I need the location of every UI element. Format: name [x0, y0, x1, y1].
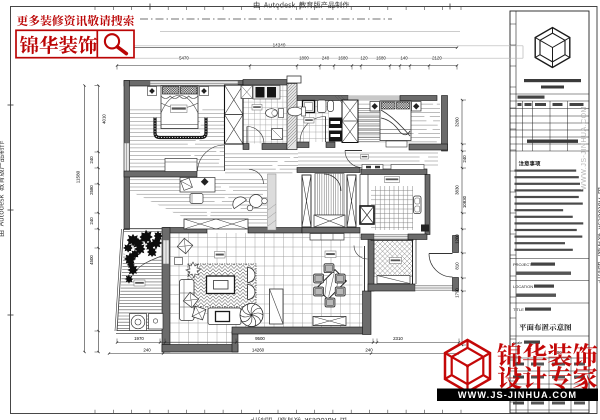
svg-text:240: 240: [89, 156, 94, 164]
svg-text:TITLE: TITLE: [513, 307, 524, 312]
svg-text:2120: 2120: [432, 55, 442, 60]
svg-text:3260: 3260: [455, 117, 460, 127]
svg-text:11580: 11580: [76, 170, 81, 183]
svg-text:4500: 4500: [89, 255, 94, 265]
svg-text:WWW.JS-JINHUA.COM: WWW.JS-JINHUA.COM: [581, 106, 588, 190]
svg-text:10830: 10830: [462, 195, 467, 208]
svg-text:2580: 2580: [89, 185, 94, 195]
svg-text:1200: 1200: [455, 234, 460, 244]
svg-text:14260: 14260: [252, 348, 265, 353]
svg-text:1790: 1790: [455, 288, 460, 298]
svg-text:5470: 5470: [179, 55, 189, 60]
svg-text:240: 240: [322, 55, 330, 60]
svg-text:2310: 2310: [393, 336, 403, 341]
svg-text:240: 240: [462, 155, 467, 163]
svg-text:PROJECT: PROJECT: [513, 262, 532, 267]
svg-text:3830: 3830: [455, 185, 460, 195]
svg-text:1970: 1970: [134, 336, 144, 341]
svg-text:1800: 1800: [299, 55, 309, 60]
svg-text:WWW.JS-JINHUA.COM: WWW.JS-JINHUA.COM: [458, 390, 577, 400]
svg-text:140: 140: [400, 55, 408, 60]
svg-text:240: 240: [143, 348, 151, 353]
svg-text:810: 810: [455, 262, 460, 270]
svg-text:9500: 9500: [255, 336, 265, 341]
svg-text:240: 240: [89, 217, 94, 225]
svg-text:4010: 4010: [102, 114, 107, 124]
svg-text:120: 120: [360, 55, 368, 60]
svg-text:1680: 1680: [376, 55, 386, 60]
svg-text:240: 240: [365, 348, 373, 353]
svg-text:14240: 14240: [273, 42, 286, 47]
svg-text:LOCATION: LOCATION: [513, 284, 533, 289]
svg-text:1680: 1680: [338, 55, 348, 60]
